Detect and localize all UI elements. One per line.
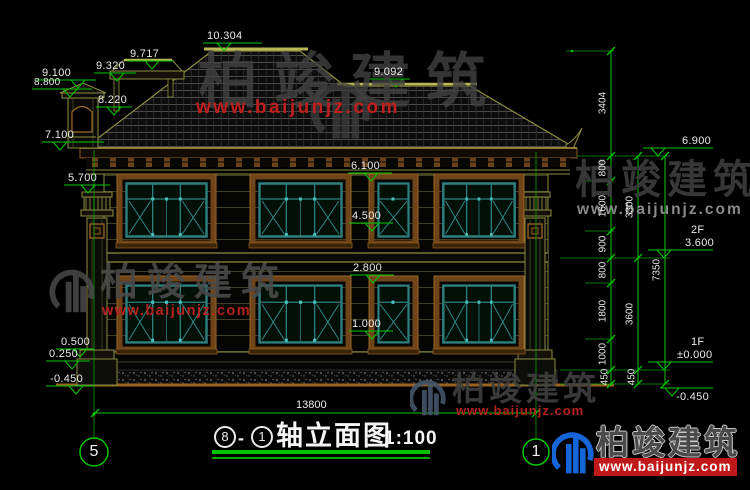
level-ridge-2: 9.092 xyxy=(374,66,403,78)
dim-3600: 3600 xyxy=(625,303,636,325)
title-dash: - xyxy=(238,428,244,449)
level-chimney-cap: 8.800 xyxy=(34,77,61,88)
level-capital: 5.700 xyxy=(68,172,97,184)
title-underline-thin xyxy=(212,457,430,459)
title-axis-end: 1 xyxy=(251,426,273,448)
windows-2f xyxy=(116,174,525,248)
level-eave-right: 6.900 xyxy=(682,135,711,147)
watermark-url-left: www.baijunjz.com xyxy=(102,304,251,319)
dim-width-13800: 13800 xyxy=(296,399,327,411)
level-2f-window-top: 6.100 xyxy=(351,160,380,172)
level-floor2: 3.600 xyxy=(685,237,714,249)
level-1f-sill: 1.000 xyxy=(352,318,381,330)
level-dormer-ridge: 9.717 xyxy=(130,48,159,60)
dim-7350: 7350 xyxy=(652,259,663,281)
level-eave: 7.100 xyxy=(45,129,74,141)
elevation-sheet: 柏竣建筑 www.baijunjz.com 柏竣建筑 www.baijunjz.… xyxy=(0,0,750,490)
level-floor1: ±0.000 xyxy=(677,349,712,361)
axis-bubble-right: 1 xyxy=(532,443,541,461)
dim-1600: 1600 xyxy=(598,195,609,217)
level-dormer-eave: 9.320 xyxy=(96,60,125,72)
title-axis-start: 8 xyxy=(214,426,236,448)
dim-3300: 3300 xyxy=(625,196,636,218)
level-ground-left: -0.450 xyxy=(50,373,83,385)
watermark-url-bottom-right: www.baijunjz.com xyxy=(594,458,737,476)
title-underline-thick xyxy=(212,450,430,454)
watermark-url-bottom-mid: www.baijunjz.com xyxy=(456,404,584,417)
drawing-scale: 1:100 xyxy=(384,428,438,450)
dim-800b: 800 xyxy=(598,262,609,279)
axis-bubble-left: 5 xyxy=(90,443,99,461)
floor2-tag: 2F xyxy=(691,224,704,236)
level-ground-right: -0.450 xyxy=(676,391,709,403)
drawing-title: 轴立面图 xyxy=(276,423,392,450)
floor1-tag: 1F xyxy=(691,336,704,348)
dim-900: 900 xyxy=(598,236,609,253)
dim-1800: 1800 xyxy=(598,300,609,322)
dim-3404: 3404 xyxy=(598,92,609,114)
level-roof-break: 8.220 xyxy=(98,94,127,106)
level-2f-sill: 4.500 xyxy=(352,210,381,222)
watermark-brand-bottom-right: 柏竣建筑 xyxy=(596,426,740,459)
watermark-logo-bottom-right xyxy=(553,435,591,473)
watermark-brand-bottom-mid: 柏竣建筑 xyxy=(452,372,600,405)
level-ridge: 10.304 xyxy=(207,30,242,42)
watermark-logo-left xyxy=(52,273,91,313)
level-plinth-high: 0.500 xyxy=(61,336,90,348)
watermark-url-top: www.baijunjz.com xyxy=(196,98,400,117)
dim-450b: 450 xyxy=(627,369,638,386)
watermark-brand-left: 柏竣建筑 xyxy=(100,264,288,302)
watermark-logo-bottom-mid xyxy=(411,382,443,415)
dim-1000: 1000 xyxy=(598,343,609,365)
level-plinth-low: 0.250 xyxy=(49,348,78,360)
level-1f-window-top: 2.800 xyxy=(353,262,382,274)
dim-450a: 450 xyxy=(600,369,611,386)
dim-800a: 800 xyxy=(598,160,609,177)
